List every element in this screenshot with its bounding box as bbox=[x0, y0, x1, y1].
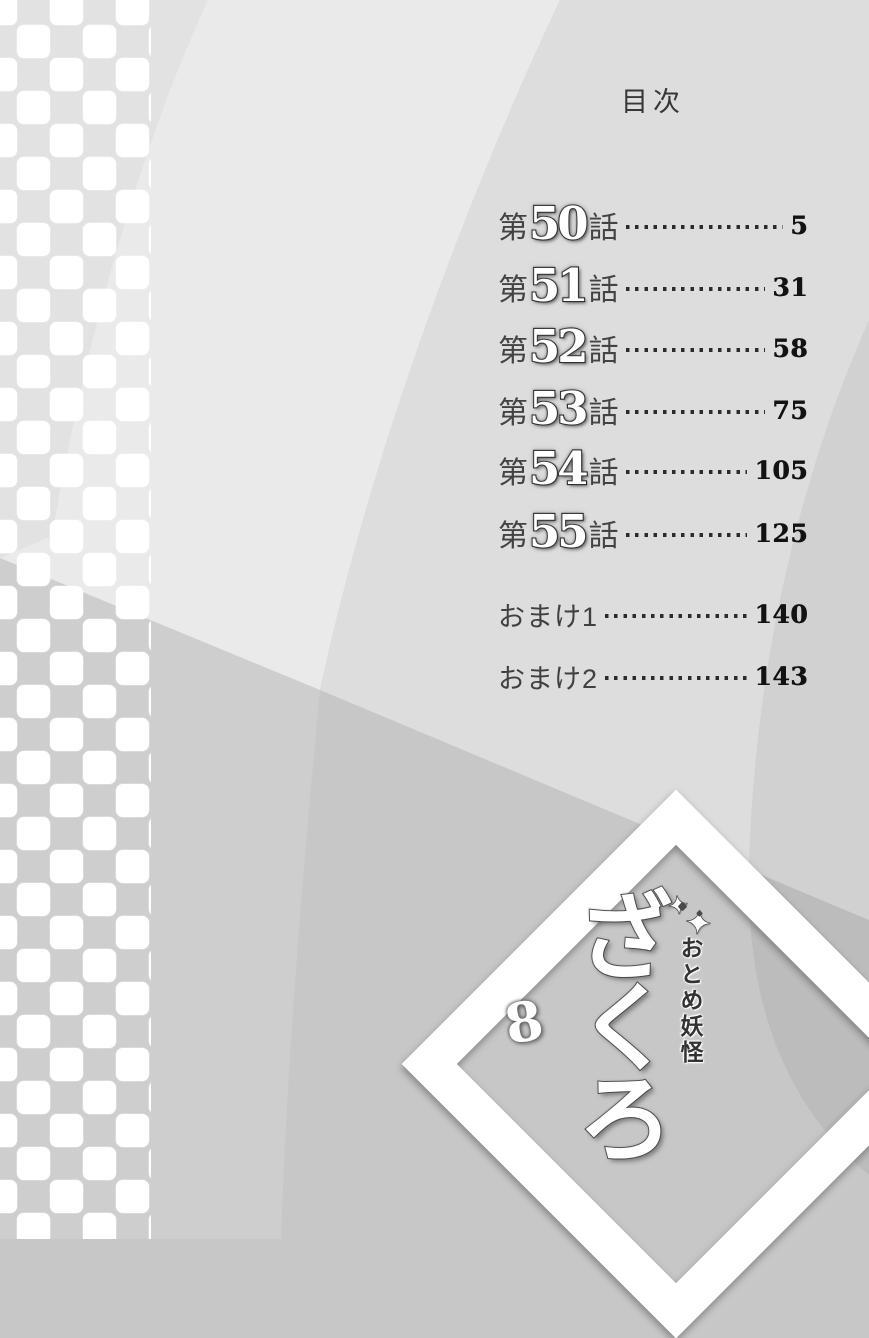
chapter-row-52: 第52話 58 bbox=[498, 324, 808, 372]
checker-cell bbox=[0, 256, 17, 289]
checker-cell bbox=[50, 256, 83, 289]
checker-cell bbox=[17, 883, 50, 916]
checker-cell bbox=[149, 883, 151, 916]
chapter-suffix: 話 bbox=[589, 448, 619, 492]
logo-series-label: おとめ妖怪 bbox=[678, 936, 701, 1066]
checker-cell bbox=[116, 916, 149, 949]
chapter-row-50: 第50話 5 bbox=[498, 201, 808, 249]
checker-cell bbox=[116, 520, 149, 553]
dot-leader bbox=[605, 614, 747, 618]
checker-cell bbox=[83, 487, 116, 520]
checker-cell bbox=[116, 124, 149, 157]
checker-cell bbox=[0, 586, 17, 619]
checker-cell bbox=[116, 58, 149, 91]
page-number: 125 bbox=[754, 519, 808, 548]
dot-leader bbox=[626, 410, 766, 414]
dot-leader bbox=[626, 533, 748, 537]
checker-cell bbox=[149, 223, 151, 256]
checker-cell bbox=[116, 982, 149, 1015]
checker-cell bbox=[83, 751, 116, 784]
chapter-row-54: 第54話 105 bbox=[498, 446, 808, 494]
checker-cell bbox=[83, 25, 116, 58]
checker-cell bbox=[116, 388, 149, 421]
checker-cell bbox=[0, 124, 17, 157]
chapter-number: 55 bbox=[529, 509, 586, 554]
checker-cell bbox=[0, 388, 17, 421]
checker-cell bbox=[0, 1114, 17, 1147]
chapter-prefix: 第 bbox=[498, 265, 528, 309]
checker-cell bbox=[17, 685, 50, 718]
checker-cell bbox=[0, 718, 17, 751]
checker-cell bbox=[83, 949, 116, 982]
page-number: 5 bbox=[790, 211, 808, 240]
checker-cell bbox=[83, 553, 116, 586]
checker-cell bbox=[149, 1213, 151, 1239]
extra-label: おまけ2 bbox=[498, 657, 598, 696]
checker-cell bbox=[116, 454, 149, 487]
checker-cell bbox=[116, 190, 149, 223]
checker-cell bbox=[50, 1048, 83, 1081]
checker-cell bbox=[17, 619, 50, 652]
dot-leader bbox=[626, 225, 783, 229]
checker-cell bbox=[17, 91, 50, 124]
chapter-number: 52 bbox=[529, 324, 586, 369]
checker-cell bbox=[50, 388, 83, 421]
checker-cell bbox=[149, 25, 151, 58]
checker-cell bbox=[149, 949, 151, 982]
chapter-suffix: 話 bbox=[589, 326, 619, 370]
checker-cell bbox=[149, 421, 151, 454]
checker-cell bbox=[116, 586, 149, 619]
checker-cell bbox=[116, 1180, 149, 1213]
checker-cell bbox=[50, 586, 83, 619]
checker-cell bbox=[83, 223, 116, 256]
checker-cell bbox=[17, 223, 50, 256]
checker-cell bbox=[149, 157, 151, 190]
checker-cell bbox=[116, 1048, 149, 1081]
checker-cell bbox=[83, 1213, 116, 1239]
checker-cell bbox=[17, 157, 50, 190]
checker-cell bbox=[149, 553, 151, 586]
dot-leader bbox=[626, 287, 766, 291]
dot-leader bbox=[626, 348, 766, 352]
checker-cell bbox=[50, 784, 83, 817]
checker-cell bbox=[50, 520, 83, 553]
checker-cell bbox=[0, 322, 17, 355]
checker-cell bbox=[17, 289, 50, 322]
checker-cell bbox=[17, 355, 50, 388]
checker-cell bbox=[0, 784, 17, 817]
extra-row-2: おまけ2 143 bbox=[498, 658, 808, 694]
checker-cell bbox=[83, 91, 116, 124]
checker-cell bbox=[50, 190, 83, 223]
checker-cell bbox=[116, 850, 149, 883]
checker-cell bbox=[50, 850, 83, 883]
chapter-number: 53 bbox=[529, 386, 586, 431]
chapter-row-55: 第55話 125 bbox=[498, 509, 808, 557]
checker-cell bbox=[83, 1147, 116, 1180]
checker-cell bbox=[149, 355, 151, 388]
checker-cell bbox=[0, 850, 17, 883]
checker-cell bbox=[83, 619, 116, 652]
checker-cell bbox=[50, 124, 83, 157]
checker-cell bbox=[50, 1114, 83, 1147]
checkerboard-pattern bbox=[0, 0, 151, 1239]
checker-cell bbox=[50, 652, 83, 685]
checker-cell bbox=[50, 1180, 83, 1213]
extra-label: おまけ1 bbox=[498, 595, 598, 634]
checker-cell bbox=[50, 322, 83, 355]
checker-cell bbox=[0, 454, 17, 487]
checker-cell bbox=[116, 652, 149, 685]
chapter-number: 54 bbox=[529, 446, 586, 491]
checker-cell bbox=[17, 1081, 50, 1114]
chapter-number: 50 bbox=[529, 201, 586, 246]
chapter-suffix: 話 bbox=[589, 265, 619, 309]
checker-cell bbox=[0, 1180, 17, 1213]
page-number: 105 bbox=[754, 456, 808, 485]
page-number: 31 bbox=[772, 273, 808, 302]
checker-cell bbox=[17, 421, 50, 454]
checker-cell bbox=[83, 421, 116, 454]
checker-cell bbox=[17, 487, 50, 520]
checker-cell bbox=[0, 982, 17, 1015]
checker-cell bbox=[116, 784, 149, 817]
checker-cell bbox=[149, 91, 151, 124]
checker-cell bbox=[0, 652, 17, 685]
checker-cell bbox=[0, 58, 17, 91]
checker-cell bbox=[149, 685, 151, 718]
extra-row-1: おまけ1 140 bbox=[498, 596, 808, 632]
checker-cell bbox=[116, 256, 149, 289]
checker-cell bbox=[83, 1081, 116, 1114]
checker-cell bbox=[0, 190, 17, 223]
checker-cell bbox=[83, 157, 116, 190]
chapter-prefix: 第 bbox=[498, 511, 528, 555]
checker-cell bbox=[83, 817, 116, 850]
chapter-suffix: 話 bbox=[589, 203, 619, 247]
chapter-row-53: 第53話 75 bbox=[498, 386, 808, 434]
checker-cell bbox=[50, 982, 83, 1015]
dot-leader bbox=[626, 470, 748, 474]
chapter-suffix: 話 bbox=[589, 511, 619, 555]
checker-cell bbox=[17, 817, 50, 850]
checker-cell bbox=[149, 289, 151, 322]
checker-cell bbox=[0, 0, 17, 25]
checker-cell bbox=[116, 1114, 149, 1147]
chapter-prefix: 第 bbox=[498, 388, 528, 432]
checker-cell bbox=[149, 619, 151, 652]
checker-cell bbox=[83, 685, 116, 718]
checker-cell bbox=[0, 520, 17, 553]
chapter-prefix: 第 bbox=[498, 326, 528, 370]
checker-cell bbox=[149, 817, 151, 850]
checker-cell bbox=[17, 751, 50, 784]
checker-cell bbox=[17, 25, 50, 58]
chapter-prefix: 第 bbox=[498, 203, 528, 247]
checker-cell bbox=[50, 454, 83, 487]
checker-cell bbox=[83, 1015, 116, 1048]
page-title: 目次 bbox=[621, 80, 685, 119]
checker-cell bbox=[149, 1081, 151, 1114]
checker-cell bbox=[0, 916, 17, 949]
logo-title: ざくろ bbox=[568, 886, 665, 1159]
checker-cell bbox=[17, 553, 50, 586]
checker-cell bbox=[17, 949, 50, 982]
checker-cell bbox=[83, 355, 116, 388]
checker-cell bbox=[83, 289, 116, 322]
chapter-number: 51 bbox=[529, 263, 586, 308]
chapter-prefix: 第 bbox=[498, 448, 528, 492]
checker-cell bbox=[149, 1015, 151, 1048]
page-number: 75 bbox=[772, 396, 808, 425]
chapter-row-51: 第51話 31 bbox=[498, 263, 808, 311]
checker-cell bbox=[0, 1048, 17, 1081]
checker-cell bbox=[50, 916, 83, 949]
chapter-suffix: 話 bbox=[589, 388, 619, 432]
checker-cell bbox=[17, 1213, 50, 1239]
checker-cell bbox=[50, 0, 83, 25]
checker-cell bbox=[83, 883, 116, 916]
dot-leader bbox=[605, 676, 747, 680]
checker-cell bbox=[17, 1147, 50, 1180]
checker-cell bbox=[50, 718, 83, 751]
checker-cell bbox=[149, 1147, 151, 1180]
checker-cell bbox=[17, 1015, 50, 1048]
checker-cell bbox=[116, 718, 149, 751]
checker-cell bbox=[116, 0, 149, 25]
checker-cell bbox=[50, 58, 83, 91]
checker-cell bbox=[149, 751, 151, 784]
page-number: 143 bbox=[754, 662, 808, 691]
checker-cell bbox=[116, 322, 149, 355]
page-number: 58 bbox=[772, 334, 808, 363]
page-number: 140 bbox=[754, 600, 808, 629]
checker-cell bbox=[149, 487, 151, 520]
